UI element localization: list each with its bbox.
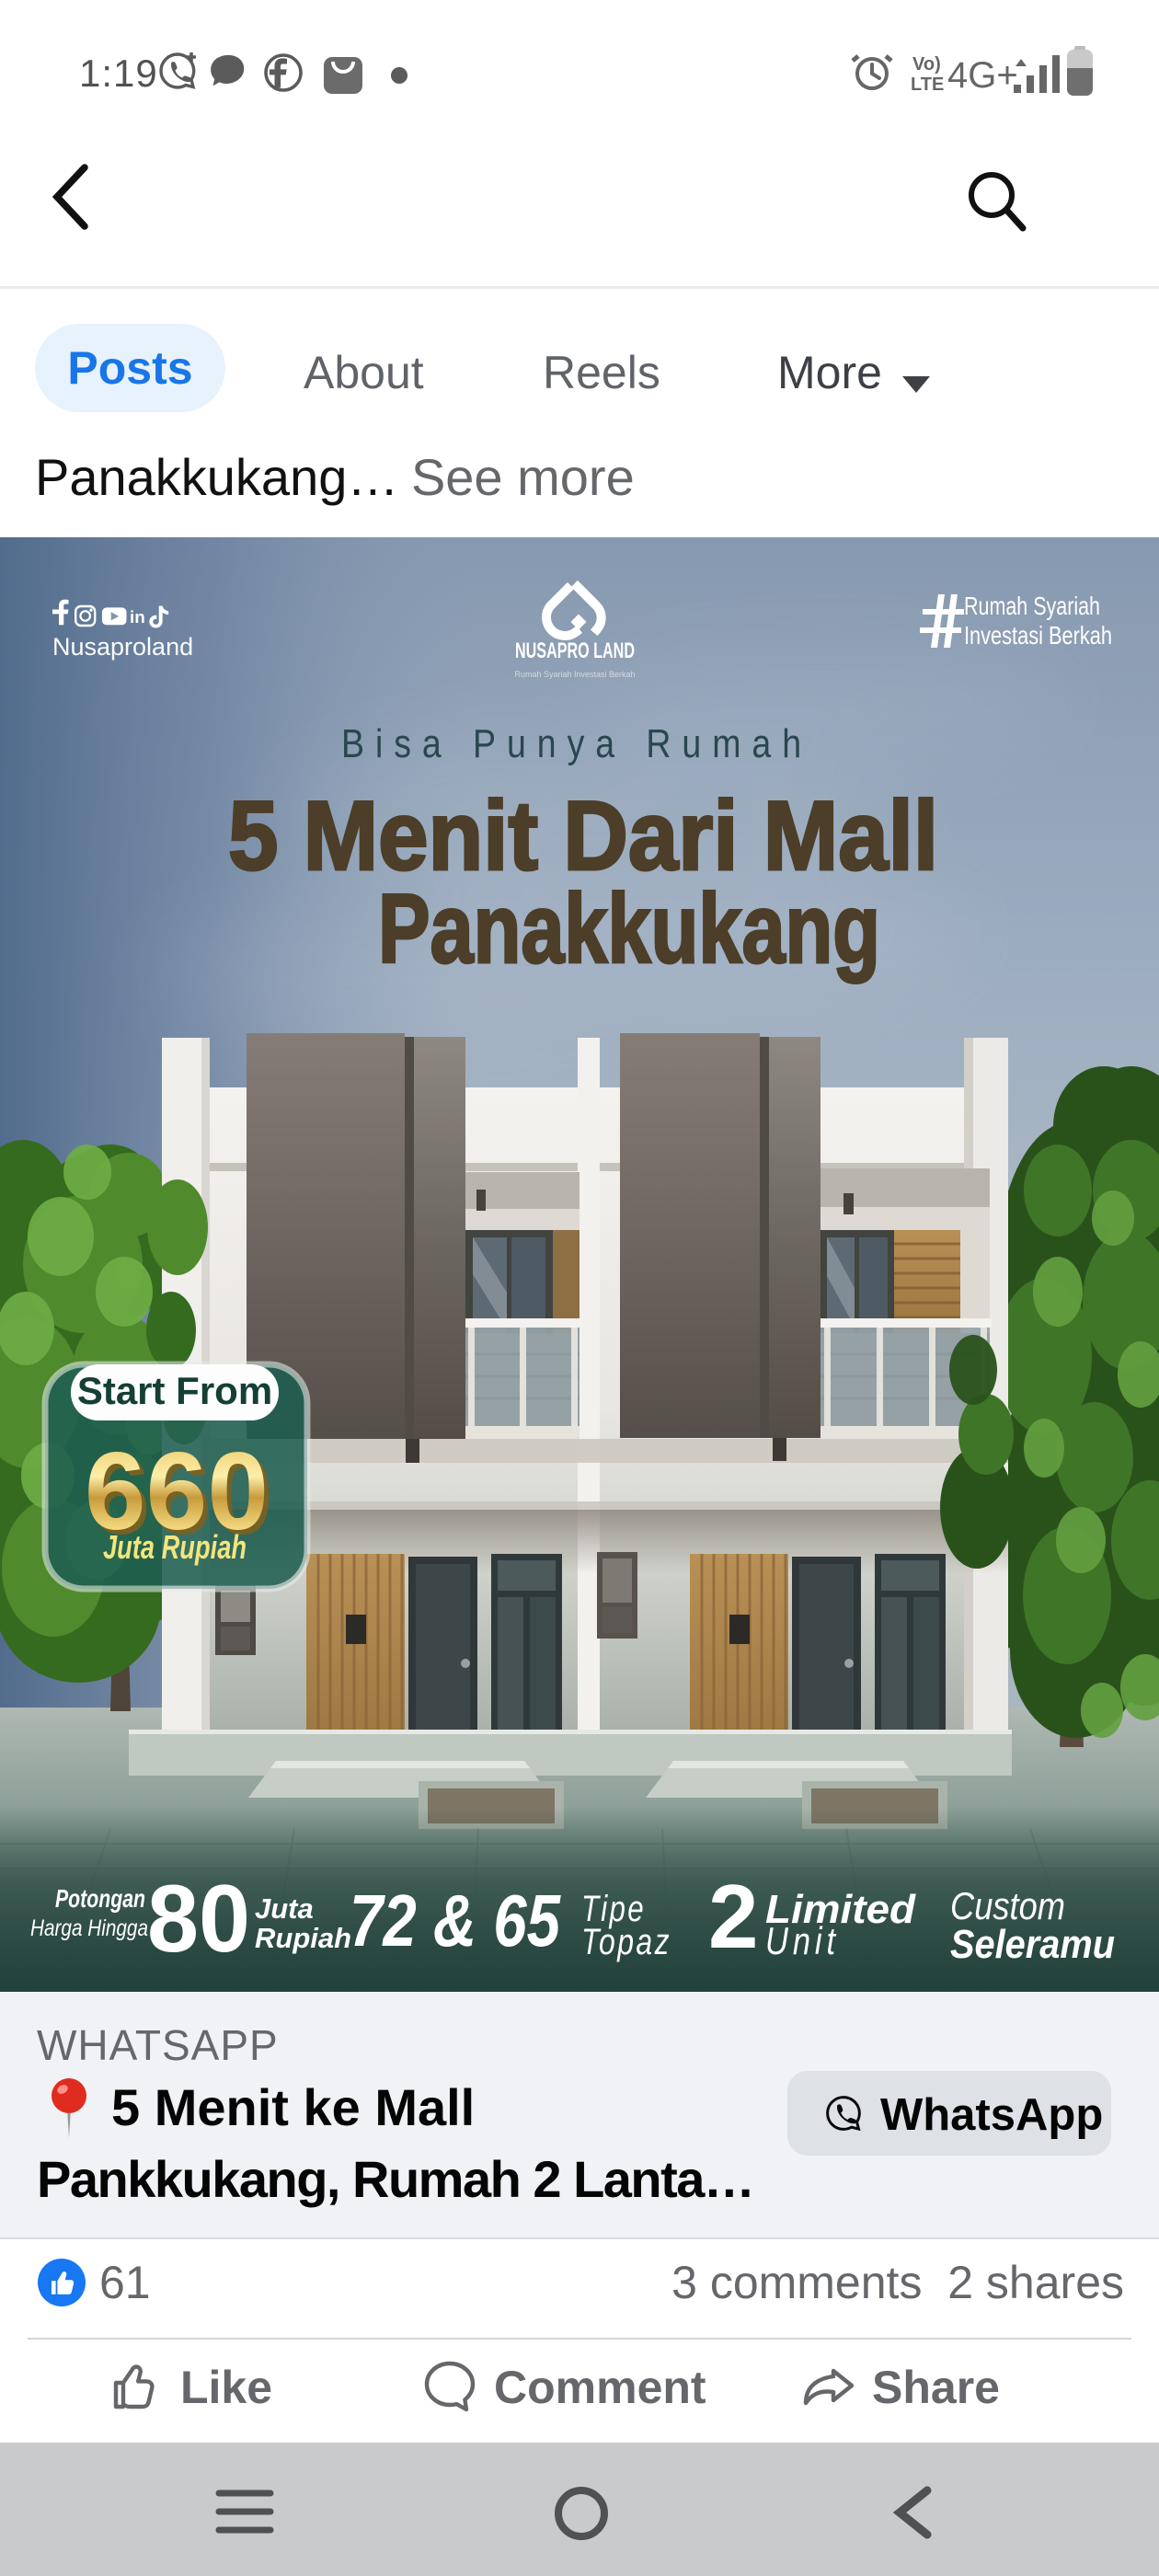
svg-text:Custom: Custom [950,1884,1065,1927]
svg-text:Panakkukang: Panakkukang [378,873,880,983]
svg-text:Nusaproland: Nusaproland [52,633,193,661]
svg-text:LTE: LTE [911,75,944,95]
svg-text:Vo): Vo) [912,54,941,75]
svg-text:Juta: Juta [255,1892,314,1925]
svg-text:72 & 65: 72 & 65 [350,1880,561,1961]
svg-text:80: 80 [147,1866,250,1972]
svg-text:Start From: Start From [77,1369,272,1412]
svg-text:Seleramu: Seleramu [950,1922,1115,1967]
svg-text:Rupiah: Rupiah [255,1922,351,1954]
svg-text:Bisa Punya Rumah: Bisa Punya Rumah [341,721,812,766]
svg-text:Juta Rupiah: Juta Rupiah [103,1528,247,1566]
svg-text:Rumah Syariah Investasi Berkah: Rumah Syariah Investasi Berkah [514,670,635,679]
svg-text:Harga Hingga: Harga Hingga [30,1915,148,1941]
svg-text:Rumah Syariah: Rumah Syariah [964,592,1100,620]
svg-text:4G+: 4G+ [947,55,1018,96]
svg-text:in: in [130,608,145,627]
svg-text:Topaz: Topaz [581,1922,671,1962]
svg-text:NUSAPRO LAND: NUSAPRO LAND [515,638,635,663]
svg-text:2: 2 [708,1866,759,1967]
svg-text:Potongan: Potongan [55,1884,145,1913]
svg-text:Investasi Berkah: Investasi Berkah [964,621,1112,650]
svg-text:Unit: Unit [765,1919,840,1962]
